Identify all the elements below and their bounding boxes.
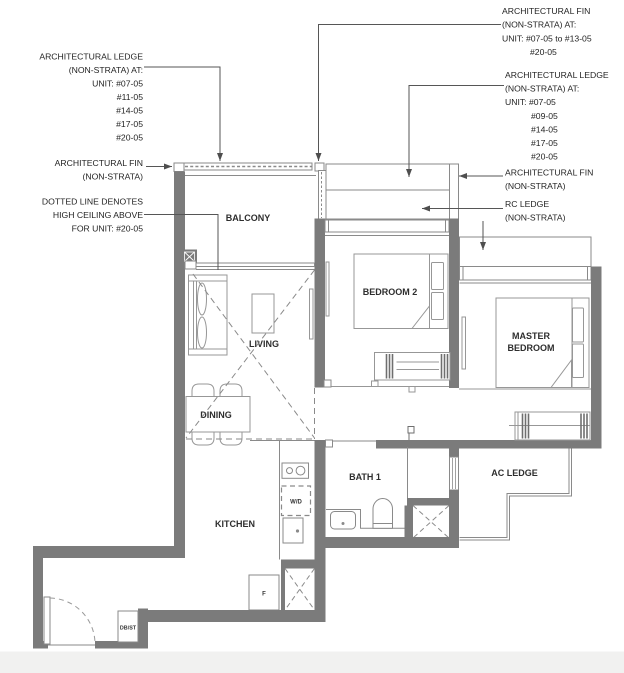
svg-text:ARCHITECTURAL FIN: ARCHITECTURAL FIN xyxy=(55,158,143,168)
svg-text:DINING: DINING xyxy=(200,410,232,420)
svg-text:DOTTED LINE DENOTES: DOTTED LINE DENOTES xyxy=(42,197,143,207)
svg-text:#17-05: #17-05 xyxy=(531,138,558,148)
svg-text:(NON-STRATA) AT:: (NON-STRATA) AT: xyxy=(502,20,576,30)
svg-text:#20-05: #20-05 xyxy=(530,47,557,57)
svg-text:(NON-STRATA): (NON-STRATA) xyxy=(82,172,143,182)
svg-text:#20-05: #20-05 xyxy=(531,152,558,162)
svg-text:BEDROOM: BEDROOM xyxy=(508,343,555,353)
svg-text:RC LEDGE: RC LEDGE xyxy=(505,199,549,209)
svg-text:(NON-STRATA): (NON-STRATA) xyxy=(505,181,566,191)
svg-text:FOR UNIT: #20-05: FOR UNIT: #20-05 xyxy=(72,224,144,234)
svg-text:#20-05: #20-05 xyxy=(116,133,143,143)
svg-text:UNIT: #07-05: UNIT: #07-05 xyxy=(92,79,143,89)
svg-text:KITCHEN: KITCHEN xyxy=(215,519,255,529)
svg-text:UNIT: #07-05 to #13-05: UNIT: #07-05 to #13-05 xyxy=(502,33,592,43)
svg-text:#14-05: #14-05 xyxy=(116,106,143,116)
svg-text:MASTER: MASTER xyxy=(512,331,551,341)
svg-text:ARCHITECTURAL FIN: ARCHITECTURAL FIN xyxy=(505,168,593,178)
svg-text:#11-05: #11-05 xyxy=(117,92,143,102)
svg-text:W/D: W/D xyxy=(290,500,302,506)
svg-text:BEDROOM 2: BEDROOM 2 xyxy=(363,287,418,297)
svg-text:ARCHITECTURAL LEDGE: ARCHITECTURAL LEDGE xyxy=(505,70,609,80)
svg-text:#17-05: #17-05 xyxy=(116,119,143,129)
svg-text:DB/ST: DB/ST xyxy=(120,626,137,632)
svg-text:AC LEDGE: AC LEDGE xyxy=(491,468,538,478)
svg-text:(NON-STRATA): (NON-STRATA) xyxy=(505,213,566,223)
svg-text:F: F xyxy=(262,592,266,598)
svg-text:#09-05: #09-05 xyxy=(531,111,558,121)
svg-text:ARCHITECTURAL LEDGE: ARCHITECTURAL LEDGE xyxy=(39,52,143,62)
svg-text:ARCHITECTURAL FIN: ARCHITECTURAL FIN xyxy=(502,6,590,16)
svg-text:BALCONY: BALCONY xyxy=(226,213,271,223)
svg-text:(NON-STRATA) AT:: (NON-STRATA) AT: xyxy=(69,65,143,75)
svg-text:BATH 1: BATH 1 xyxy=(349,472,381,482)
svg-text:(NON-STRATA) AT:: (NON-STRATA) AT: xyxy=(505,84,579,94)
svg-text:UNIT: #07-05: UNIT: #07-05 xyxy=(505,97,556,107)
svg-text:#14-05: #14-05 xyxy=(531,124,558,134)
svg-text:LIVING: LIVING xyxy=(249,339,279,349)
svg-text:HIGH CEILING ABOVE: HIGH CEILING ABOVE xyxy=(53,210,143,220)
